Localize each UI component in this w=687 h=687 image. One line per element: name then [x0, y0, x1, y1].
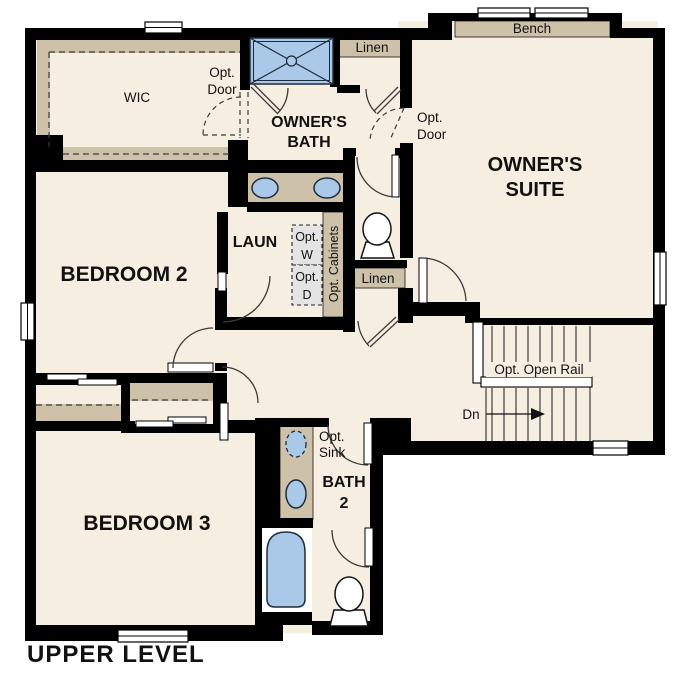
svg-text:W: W [301, 248, 313, 262]
window-suite-top-left [478, 8, 530, 18]
svg-text:Door: Door [417, 127, 447, 142]
svg-text:OWNER'S: OWNER'S [488, 154, 583, 176]
svg-text:OWNER'S: OWNER'S [271, 114, 347, 131]
bath2-opt-sink [286, 431, 306, 457]
window-bedroom2-left [21, 303, 34, 340]
svg-text:SUITE: SUITE [506, 179, 565, 201]
svg-text:Opt.: Opt. [417, 110, 443, 125]
closet-right-shelf [130, 383, 213, 401]
wic-shelf-top [37, 40, 240, 53]
svg-text:Sink: Sink [319, 445, 346, 460]
stair-side-rail [473, 322, 483, 383]
toilet-owners-wc [361, 213, 394, 258]
shower-drain [287, 56, 297, 66]
window-suite-right [654, 252, 666, 305]
svg-text:BATH: BATH [322, 474, 365, 491]
window-stair-landing [593, 441, 628, 455]
bathtub [267, 532, 305, 607]
window-suite-top-right [535, 8, 588, 18]
floor-plan: WIC Opt. Door OWNER'S BATH Linen Bench O… [0, 0, 687, 687]
svg-text:Opt.: Opt. [295, 230, 319, 244]
room-label-laundry: LAUN [233, 234, 277, 251]
annotation-down: Dn [462, 407, 479, 422]
svg-text:2: 2 [340, 495, 349, 512]
svg-text:Opt.: Opt. [319, 429, 345, 444]
wic-shelf-left [37, 53, 50, 147]
bath2-sink [286, 480, 306, 508]
svg-text:Opt.: Opt. [295, 270, 319, 284]
owners-bath-sink [314, 178, 340, 198]
owners-bath-sink [252, 178, 278, 198]
svg-text:D: D [302, 288, 311, 302]
window-wic [145, 22, 182, 33]
annotation-opt-cabinets: Opt. Cabinets [327, 226, 341, 302]
floor-plan-drawing: WIC Opt. Door OWNER'S BATH Linen Bench O… [0, 0, 687, 687]
annotation-bench: Bench [513, 21, 551, 36]
closet-right-bypass-door [136, 421, 173, 427]
annotation-opt-open-rail: Opt. Open Rail [494, 362, 583, 377]
shower [250, 38, 333, 84]
closet-left-bypass-door [78, 379, 117, 385]
stair-open-rail [481, 377, 592, 387]
annotation-linen-hall: Linen [361, 271, 394, 286]
annotation-opt-sink: Opt. Sink [319, 429, 346, 460]
annotation-linen-top: Linen [355, 40, 388, 55]
svg-text:Opt.: Opt. [209, 65, 235, 80]
room-label-bedroom3: BEDROOM 3 [83, 512, 210, 535]
svg-text:Door: Door [207, 82, 237, 97]
room-label-bedroom2: BEDROOM 2 [60, 263, 187, 286]
closet-right-bypass-door [168, 417, 206, 423]
page-title: UPPER LEVEL [27, 641, 205, 668]
room-label-wic: WIC [124, 90, 150, 105]
closet-left-shelf [34, 404, 121, 421]
svg-text:BATH: BATH [287, 134, 330, 151]
